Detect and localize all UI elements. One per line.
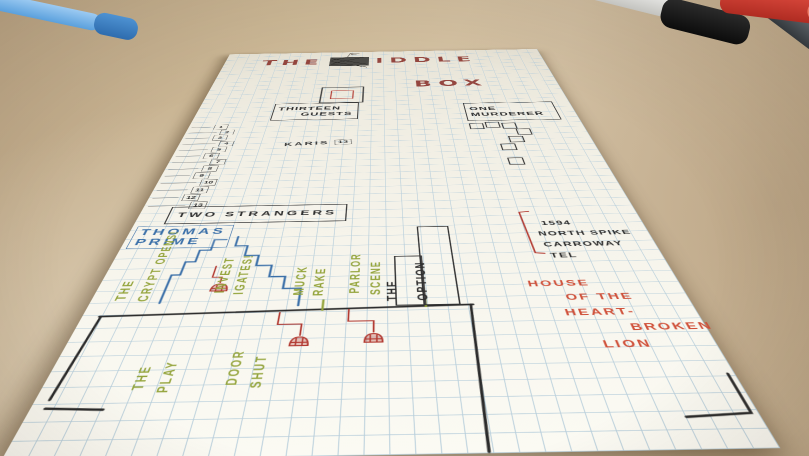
guest-name-scribble xyxy=(164,175,190,176)
two-strangers-label: TWO STRANGERS xyxy=(175,208,337,220)
red-wire-drawing xyxy=(348,309,374,333)
guest-name-scribble xyxy=(160,182,196,184)
the-play-note-col1: THE xyxy=(131,365,155,390)
house-line5: LION xyxy=(600,334,728,353)
guest-number: 4 xyxy=(218,141,234,146)
karis-text: KARIS xyxy=(284,140,330,147)
title-word-iddle: IDDLE xyxy=(375,55,478,65)
door-shut-note-col1: DOOR xyxy=(225,350,248,386)
red-wire-drawing xyxy=(275,312,303,336)
guest-name-scribble xyxy=(185,138,209,139)
muck-rake-note-col2: RAKE xyxy=(311,268,328,297)
floor-line-drawing xyxy=(99,304,474,316)
door-shut-note-col2: SHUT xyxy=(249,355,270,389)
lantern-icon xyxy=(289,337,308,346)
the-option-col1: THE xyxy=(385,280,400,301)
house-note: HOUSE OF THE HEART- BROKEN LION xyxy=(526,275,729,355)
the-option-col2: OPTION xyxy=(413,261,430,300)
flag-icon xyxy=(350,53,360,55)
riddle-box-icon xyxy=(329,53,370,68)
guest-name-scribble xyxy=(188,132,216,133)
guest-number: 7 xyxy=(209,159,226,165)
guest-number: 5 xyxy=(211,147,228,153)
address-line3: CARROWAY xyxy=(542,237,641,250)
right-drop-line-drawing xyxy=(465,304,498,451)
guest-number: 3 xyxy=(212,135,228,140)
title-word-box: BOX xyxy=(414,78,490,89)
desk-scene: THE IDDLE BOX THIRTEEN GUESTS ONE MURDER… xyxy=(0,0,809,456)
crypt-note-col1: THE xyxy=(113,280,138,301)
guest-name-scribble xyxy=(191,127,210,128)
left-stub-drawing xyxy=(44,408,104,411)
one-murderer-box: ONE MURDERER xyxy=(463,102,562,121)
guest-number: 10 xyxy=(199,179,218,186)
guest-name-scribble xyxy=(152,197,179,199)
blue-marker-cap xyxy=(92,11,140,42)
two-strangers-box: TWO STRANGERS xyxy=(164,204,348,224)
thomas-prime-label: THOMAS PRIME xyxy=(126,225,234,249)
guest-number: 1 xyxy=(213,125,229,130)
sharpie-body: Sharpie xyxy=(540,0,673,18)
parlor-scene-note-col1: PARLOR xyxy=(348,253,364,293)
guest-number: 11 xyxy=(190,186,209,193)
guest-name-scribble xyxy=(168,168,198,170)
guest-number: 8 xyxy=(201,166,219,172)
address-note: 1594 NORTH SPIKE CARROWAY TEL xyxy=(533,217,647,262)
square-motif xyxy=(320,87,364,103)
paper-tilt: THE IDDLE BOX THIRTEEN GUESTS ONE MURDER… xyxy=(0,0,809,456)
guest-name-scribble xyxy=(172,162,207,164)
guest-number: 6 xyxy=(203,153,220,159)
thirteen-guests-box: THIRTEEN GUESTS xyxy=(270,102,359,120)
muck-rake-note-col1: MUCK xyxy=(291,266,310,296)
lantern-icon xyxy=(364,333,382,342)
flag-pole-icon xyxy=(347,53,350,57)
guest-name-scribble xyxy=(179,149,208,150)
karis-note: KARIS 13 xyxy=(284,139,352,147)
guest-name-scribble xyxy=(182,143,216,145)
guest-number: 12 xyxy=(181,194,201,201)
guest-number: 9 xyxy=(193,172,211,178)
ink-drawings xyxy=(0,49,780,456)
guest-name-scribble xyxy=(175,156,200,157)
parlor-scene-note-col2: SCENE xyxy=(369,261,383,295)
thirteen-guests-line2: GUESTS xyxy=(300,111,358,118)
guest-list: 12345678910111213 xyxy=(146,124,245,210)
guest-number: 2 xyxy=(219,130,235,135)
guest-name-scribble xyxy=(156,189,188,191)
left-wall-drawing xyxy=(50,317,101,400)
sharpie-logo: Sharpie xyxy=(565,0,621,1)
thomas-prime-line1: THOMAS xyxy=(138,226,228,237)
corner-l-drawing xyxy=(666,374,753,417)
the-play-note-col2: PLAY xyxy=(156,360,182,393)
house-line4: BROKEN xyxy=(627,318,718,336)
graph-paper: THE IDDLE BOX THIRTEEN GUESTS ONE MURDER… xyxy=(0,49,780,456)
address-line4: TEL xyxy=(548,248,647,261)
karis-number-box: 13 xyxy=(335,139,352,145)
question-mark-squares xyxy=(469,121,545,164)
title-word-the: THE xyxy=(260,58,324,67)
one-murderer-line2: MURDERER xyxy=(466,110,559,117)
